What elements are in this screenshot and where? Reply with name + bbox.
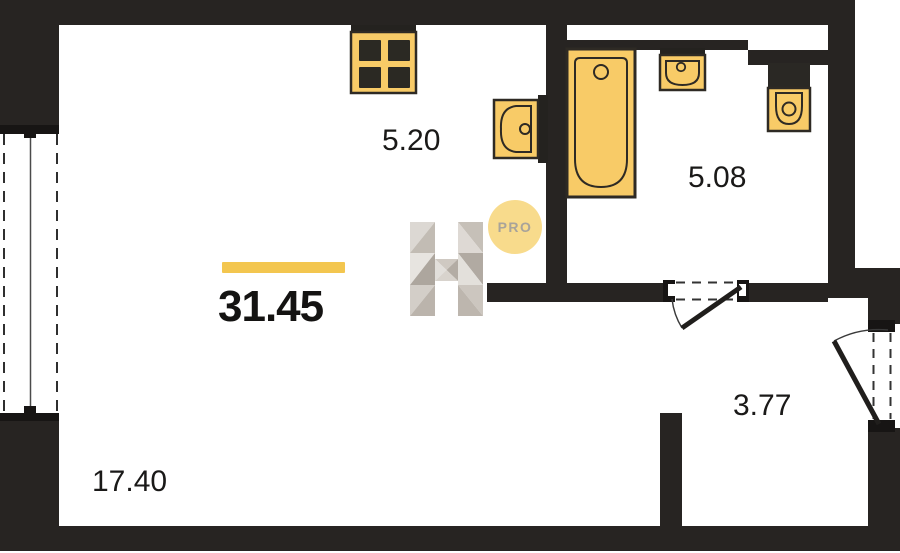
kitchen-sink-icon (494, 95, 548, 163)
window (4, 129, 57, 415)
room-area-label-kitchen: 5.20 (382, 126, 440, 156)
room-area-label-bathroom: 5.08 (688, 163, 746, 193)
wall-bathroom-bottom-left (487, 283, 663, 302)
wall-right-below-door (868, 428, 900, 551)
door-jamb (868, 420, 895, 432)
entry-door (834, 320, 895, 432)
door-swing-arc (672, 299, 682, 328)
wall-top (0, 0, 855, 25)
wall-divider (546, 25, 567, 302)
wall-bottom (0, 526, 900, 551)
h-logo-watermark (410, 222, 483, 317)
floor-plan: 31.45 5.20 5.08 3.77 17.40 PRO (0, 0, 900, 553)
wall-bathroom-bottom-right (749, 283, 828, 302)
area-highlight-bar (222, 262, 345, 273)
pro-badge: PRO (488, 200, 542, 254)
door-leaf (682, 287, 741, 328)
bathroom-door (663, 280, 749, 328)
h-logo-crossbar (435, 259, 458, 281)
wall-right-step (828, 268, 900, 298)
wall-right-upper (828, 0, 855, 268)
room-area-label-hallway: 3.77 (733, 391, 791, 421)
wall-left-upper-pier (0, 0, 59, 125)
h-logo-left-bar (410, 222, 435, 316)
total-area-label: 31.45 (218, 285, 323, 329)
toilet-icon (768, 63, 810, 131)
door-leaf (834, 341, 879, 424)
wall-hall-partition (660, 413, 682, 527)
room-area-label-living-room: 17.40 (92, 467, 167, 497)
wall-bathroom-top-inner-right (748, 50, 828, 65)
washbasin-icon (660, 48, 705, 90)
h-logo-right-bar (458, 222, 483, 316)
bathtub-icon (567, 49, 635, 197)
stove-icon (351, 25, 416, 93)
